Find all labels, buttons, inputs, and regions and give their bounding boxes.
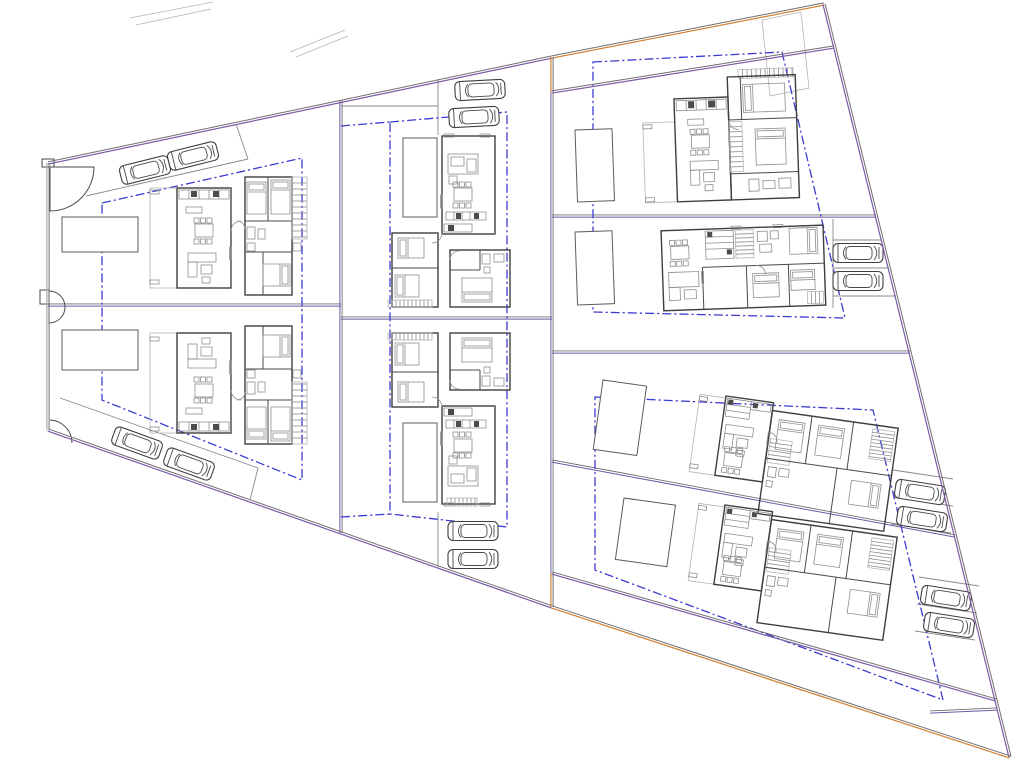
- pool-middle-bottom: [403, 423, 437, 502]
- gate-post-left-mid: [40, 290, 49, 304]
- pool-topright-2: [575, 231, 615, 305]
- car-middle-bottom-2: [448, 550, 498, 569]
- boundary-bottom-left: [48, 429, 553, 608]
- car-middle-top-1: [455, 79, 506, 101]
- boundary-bottom-step: [551, 573, 553, 607]
- lot-division-corner-short: [930, 708, 997, 713]
- house-plans: [150, 68, 899, 641]
- pool-bottomright-2: [615, 498, 675, 567]
- drawing-viewport: [0, 0, 1024, 768]
- car-left-top-1: [118, 155, 171, 186]
- car-right-middle-2: [833, 272, 883, 291]
- setback-middle-ext-top: [341, 122, 390, 126]
- house-plan-bottomright-2: [684, 501, 899, 640]
- lot-division-topright-2: [552, 351, 910, 353]
- car-middle-bottom-1: [448, 522, 498, 541]
- boundary-left: [47, 163, 49, 430]
- house-plan-left-top: [150, 177, 307, 295]
- house-plan-topright-1: [641, 68, 799, 203]
- lot-division-lines: [48, 92, 997, 713]
- boundary-top-step: [551, 57, 553, 92]
- boundary-top-right: [552, 3, 824, 58]
- car-left-top-2: [166, 141, 219, 172]
- lot-division-left-horizontal: [48, 304, 341, 306]
- gate-arc-top-left: [50, 167, 94, 211]
- gate-arc-left-low: [50, 420, 72, 443]
- parked-cars: [110, 79, 975, 638]
- car-left-bottom-2: [162, 447, 215, 482]
- lot-division-topright-1: [552, 215, 876, 217]
- lot-division-middle-horizontal: [341, 317, 552, 319]
- pool-left-bottom: [62, 330, 138, 370]
- site-plan-canvas: [0, 0, 1024, 768]
- gate-arc-left-mid: [49, 291, 65, 323]
- lot-division-col2-vertical: [551, 92, 553, 573]
- plot-boundary: [47, 3, 1011, 758]
- house-plan-left-bottom: [150, 326, 307, 444]
- pergola-hatches: [447, 498, 477, 506]
- house-plan-topright-2: [661, 223, 826, 311]
- setback-lines: [102, 52, 943, 700]
- car-bottomright-2b: [923, 612, 975, 639]
- boundary-right: [823, 4, 1011, 758]
- car-bottomright-1b: [896, 506, 948, 533]
- car-right-middle-1: [833, 244, 883, 263]
- pool-topright-1: [575, 129, 614, 202]
- car-bottomright-2a: [920, 585, 972, 612]
- setback-middle-ext-bottom: [341, 514, 390, 517]
- car-middle-top-2: [449, 106, 500, 128]
- pool-left-top: [62, 217, 138, 252]
- car-bottomright-1a: [894, 479, 946, 506]
- pool-bottomright-1: [593, 380, 646, 455]
- house-plan-bottomright-1: [685, 392, 900, 531]
- pool-middle-top: [403, 138, 437, 217]
